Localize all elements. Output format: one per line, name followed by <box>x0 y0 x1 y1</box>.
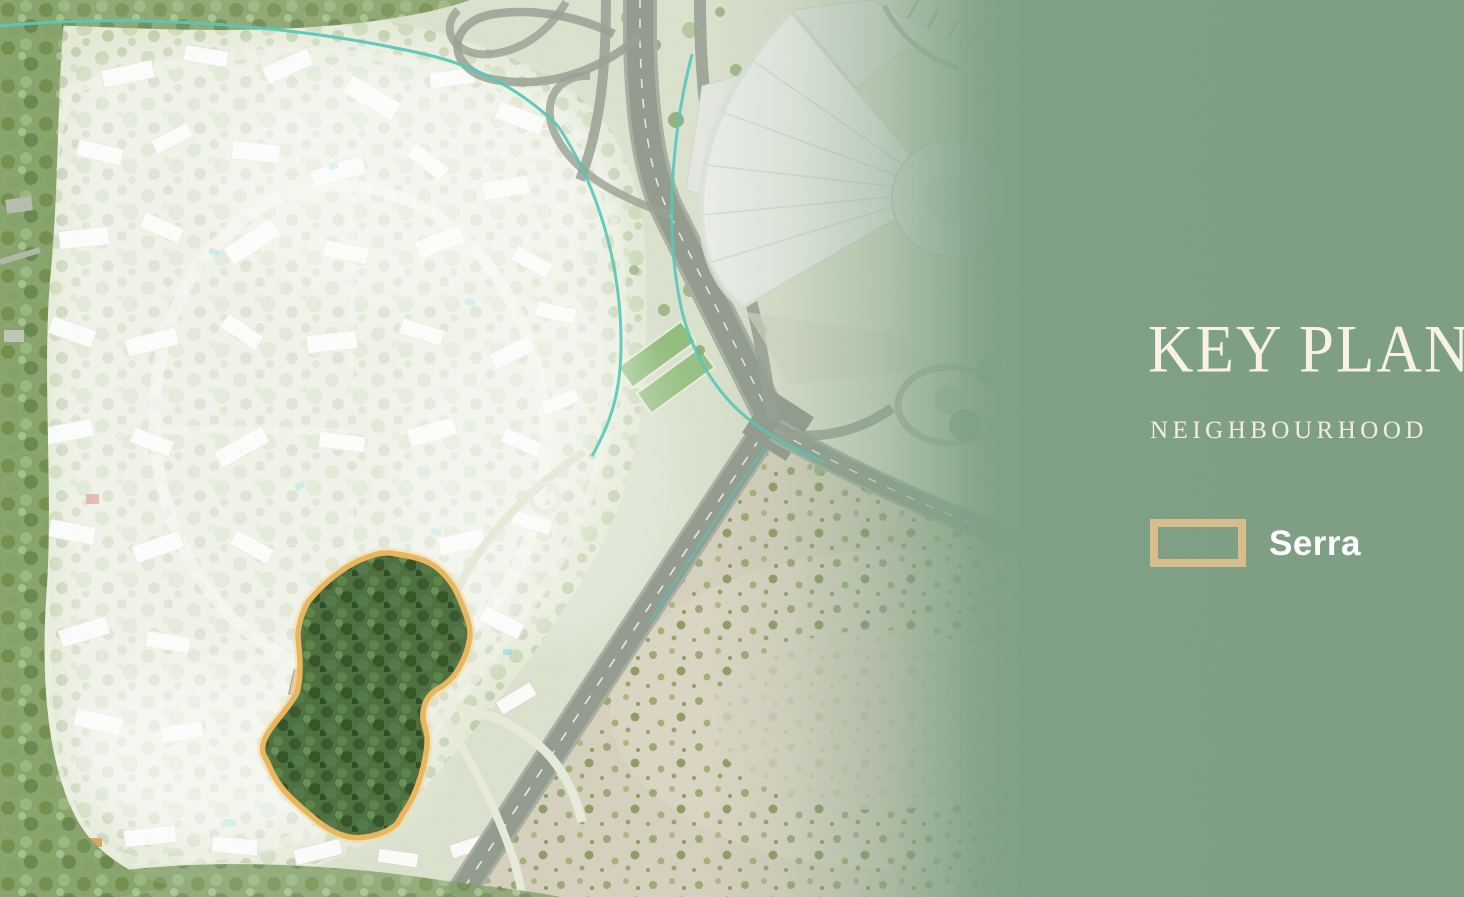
serra-legend-label: Serra <box>1269 526 1361 561</box>
legend: Serra <box>1150 519 1361 567</box>
panel-speckle-texture <box>960 0 1464 897</box>
serra-legend-swatch <box>1150 519 1246 567</box>
page-title: KEY PLAN <box>1148 316 1464 383</box>
page-subtitle: NEIGHBOURHOOD <box>1150 417 1428 445</box>
key-plan-figure: KEY PLAN NEIGHBOURHOOD Serra <box>0 0 1464 897</box>
masterplan-map <box>0 0 1464 897</box>
